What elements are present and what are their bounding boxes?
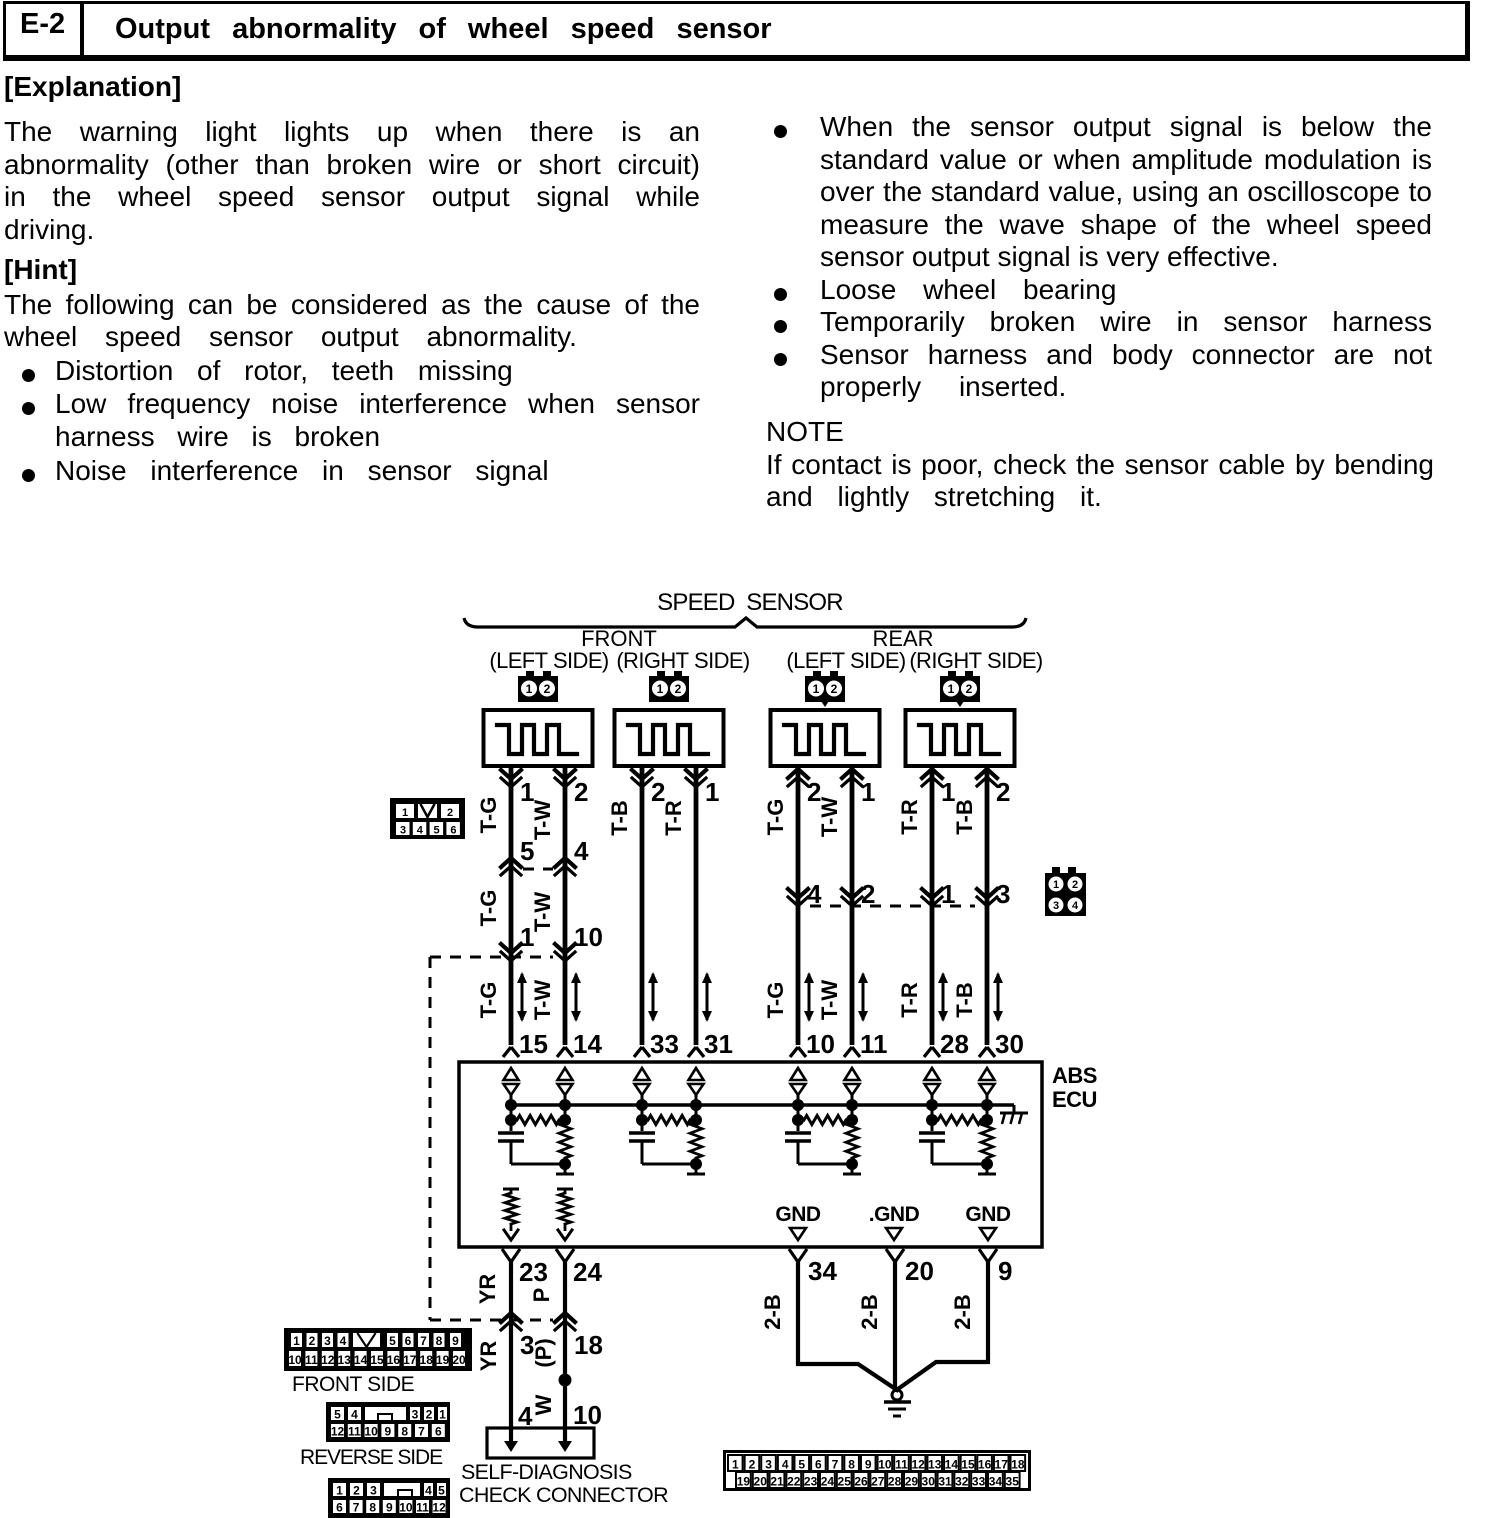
svg-text:11: 11	[895, 1458, 908, 1472]
svg-text:.GND: .GND	[869, 1203, 920, 1226]
svg-text:5: 5	[798, 1458, 805, 1472]
svg-text:23: 23	[519, 1257, 548, 1287]
svg-text:6: 6	[336, 1501, 343, 1515]
svg-text:SELF-DIAGNOSIS: SELF-DIAGNOSIS	[461, 1460, 632, 1484]
svg-text:10: 10	[878, 1458, 892, 1472]
svg-text:1: 1	[526, 682, 533, 696]
svg-text:1: 1	[402, 807, 408, 819]
svg-text:15: 15	[519, 1029, 548, 1059]
svg-text:10: 10	[399, 1501, 413, 1515]
svg-text:20: 20	[905, 1256, 934, 1286]
svg-text:24: 24	[821, 1475, 835, 1489]
svg-text:1: 1	[1053, 879, 1059, 891]
svg-text:13: 13	[338, 1353, 352, 1367]
svg-text:6: 6	[450, 825, 456, 837]
svg-text:1: 1	[520, 922, 534, 952]
svg-text:33: 33	[972, 1475, 986, 1489]
svg-text:3: 3	[324, 1334, 331, 1348]
svg-text:13: 13	[928, 1458, 942, 1472]
svg-text:2: 2	[426, 1408, 433, 1422]
svg-text:T-G: T-G	[763, 982, 788, 1019]
svg-text:4: 4	[340, 1334, 347, 1348]
svg-text:4: 4	[1072, 900, 1079, 912]
svg-text:T-G: T-G	[476, 797, 501, 834]
svg-text:3: 3	[370, 1484, 377, 1498]
svg-text:10: 10	[806, 1029, 835, 1059]
svg-text:34: 34	[808, 1256, 837, 1286]
svg-text:2: 2	[749, 1458, 756, 1472]
svg-text:30: 30	[922, 1475, 936, 1489]
svg-text:2: 2	[675, 682, 682, 696]
svg-text:4: 4	[574, 836, 589, 866]
svg-text:24: 24	[573, 1257, 602, 1287]
svg-text:6: 6	[815, 1458, 822, 1472]
svg-text:6: 6	[435, 1425, 442, 1439]
svg-text:28: 28	[940, 1029, 969, 1059]
svg-text:ECU: ECU	[1052, 1087, 1097, 1112]
svg-text:29: 29	[905, 1475, 919, 1489]
svg-text:8: 8	[401, 1425, 408, 1439]
svg-text:18: 18	[574, 1330, 603, 1360]
svg-text:2: 2	[447, 807, 453, 819]
svg-text:9: 9	[452, 1334, 459, 1348]
svg-text:10: 10	[573, 1400, 602, 1430]
svg-text:19: 19	[436, 1353, 450, 1367]
svg-text:9: 9	[998, 1256, 1012, 1286]
svg-text:18: 18	[1011, 1458, 1025, 1472]
svg-text:SPEED SENSOR: SPEED SENSOR	[657, 589, 843, 616]
svg-text:3: 3	[400, 825, 406, 837]
svg-text:1: 1	[657, 682, 664, 696]
svg-text:GND: GND	[965, 1203, 1011, 1226]
svg-text:2: 2	[966, 682, 973, 696]
svg-text:23: 23	[804, 1475, 818, 1489]
svg-text:5: 5	[334, 1408, 341, 1422]
svg-text:9: 9	[386, 1501, 393, 1515]
svg-text:35: 35	[1006, 1475, 1020, 1489]
svg-text:4: 4	[425, 1484, 432, 1498]
svg-text:5: 5	[520, 836, 534, 866]
svg-text:2: 2	[309, 1334, 316, 1348]
svg-text:T-R: T-R	[897, 799, 922, 835]
svg-text:3: 3	[412, 1408, 419, 1422]
svg-text:14: 14	[354, 1353, 368, 1367]
svg-text:15: 15	[370, 1353, 384, 1367]
svg-text:2: 2	[544, 682, 551, 696]
svg-text:5: 5	[438, 1484, 445, 1498]
svg-text:W: W	[531, 1394, 556, 1415]
svg-text:FRONT SIDE: FRONT SIDE	[292, 1373, 415, 1396]
svg-text:2: 2	[996, 777, 1010, 807]
svg-text:REVERSE SIDE: REVERSE SIDE	[300, 1446, 443, 1469]
svg-text:17: 17	[995, 1458, 1009, 1472]
svg-text:CHECK CONNECTOR: CHECK CONNECTOR	[459, 1483, 668, 1507]
svg-text:T-R: T-R	[897, 982, 922, 1018]
svg-text:8: 8	[436, 1334, 443, 1348]
svg-text:T-W: T-W	[530, 800, 555, 841]
svg-text:(LEFT SIDE): (LEFT SIDE)	[489, 648, 608, 673]
svg-text:18: 18	[420, 1353, 434, 1367]
svg-text:9: 9	[385, 1425, 392, 1439]
svg-text:14: 14	[573, 1029, 602, 1059]
svg-text:3: 3	[1053, 900, 1059, 912]
svg-text:(P): (P)	[531, 1338, 556, 1367]
svg-text:31: 31	[938, 1475, 952, 1489]
svg-text:1: 1	[948, 682, 955, 696]
svg-text:22: 22	[787, 1475, 801, 1489]
svg-text:(RIGHT SIDE): (RIGHT SIDE)	[909, 648, 1042, 673]
svg-text:15: 15	[961, 1458, 975, 1472]
svg-text:T-G: T-G	[763, 799, 788, 836]
svg-text:YR: YR	[476, 1341, 501, 1372]
svg-text:12: 12	[911, 1458, 925, 1472]
svg-text:1: 1	[293, 1334, 300, 1348]
svg-text:27: 27	[871, 1475, 885, 1489]
svg-text:28: 28	[888, 1475, 902, 1489]
svg-text:T-G: T-G	[476, 890, 501, 927]
svg-text:2-B: 2-B	[857, 1294, 882, 1329]
svg-text:12: 12	[331, 1425, 345, 1439]
svg-text:20: 20	[754, 1475, 768, 1489]
svg-text:2: 2	[1072, 879, 1078, 891]
svg-text:7: 7	[353, 1501, 360, 1515]
svg-text:(RIGHT SIDE): (RIGHT SIDE)	[616, 648, 749, 673]
svg-text:16: 16	[387, 1353, 401, 1367]
svg-text:1: 1	[439, 1408, 446, 1422]
svg-text:7: 7	[832, 1458, 839, 1472]
svg-text:16: 16	[978, 1458, 992, 1472]
svg-text:12: 12	[321, 1353, 335, 1367]
svg-text:11: 11	[416, 1501, 429, 1515]
svg-text:2: 2	[353, 1484, 360, 1498]
svg-text:20: 20	[452, 1353, 466, 1367]
svg-text:T-G: T-G	[476, 982, 501, 1019]
svg-text:1: 1	[705, 777, 719, 807]
svg-text:P: P	[529, 1288, 554, 1303]
svg-text:T-B: T-B	[952, 799, 977, 834]
svg-text:1: 1	[813, 682, 820, 696]
svg-text:17: 17	[403, 1353, 417, 1367]
svg-text:31: 31	[704, 1029, 733, 1059]
svg-text:T-W: T-W	[817, 980, 842, 1021]
svg-text:11: 11	[305, 1353, 318, 1367]
svg-text:11: 11	[860, 1029, 888, 1059]
svg-text:YR: YR	[475, 1274, 500, 1305]
svg-text:4: 4	[417, 825, 424, 837]
svg-text:11: 11	[348, 1425, 361, 1439]
svg-text:33: 33	[650, 1029, 679, 1059]
svg-text:8: 8	[848, 1458, 855, 1472]
svg-text:5: 5	[434, 825, 440, 837]
svg-text:7: 7	[418, 1425, 425, 1439]
svg-text:(LEFT SIDE): (LEFT SIDE)	[786, 648, 905, 673]
svg-text:26: 26	[854, 1475, 868, 1489]
svg-text:2: 2	[831, 682, 838, 696]
svg-text:2: 2	[574, 777, 588, 807]
svg-text:25: 25	[838, 1475, 852, 1489]
svg-text:T-B: T-B	[607, 800, 632, 835]
svg-text:T-R: T-R	[661, 800, 686, 836]
svg-text:ABS: ABS	[1052, 1063, 1097, 1088]
svg-text:1: 1	[336, 1484, 343, 1498]
svg-text:30: 30	[995, 1029, 1024, 1059]
svg-text:1: 1	[861, 777, 875, 807]
svg-text:GND: GND	[775, 1203, 821, 1226]
svg-text:T-W: T-W	[530, 980, 555, 1021]
svg-text:19: 19	[737, 1475, 751, 1489]
svg-text:2-B: 2-B	[760, 1294, 785, 1329]
svg-text:10: 10	[574, 922, 603, 952]
svg-text:34: 34	[989, 1475, 1003, 1489]
svg-text:1: 1	[732, 1458, 739, 1472]
svg-text:14: 14	[945, 1458, 959, 1472]
svg-text:12: 12	[432, 1501, 446, 1515]
svg-text:3: 3	[765, 1458, 772, 1472]
svg-text:T-B: T-B	[952, 982, 977, 1017]
svg-text:4: 4	[782, 1458, 789, 1472]
svg-text:21: 21	[770, 1475, 784, 1489]
svg-text:4: 4	[351, 1408, 358, 1422]
svg-text:9: 9	[865, 1458, 872, 1472]
svg-text:32: 32	[955, 1475, 969, 1489]
svg-text:T-W: T-W	[817, 797, 842, 838]
svg-text:10: 10	[364, 1425, 378, 1439]
svg-text:10: 10	[288, 1353, 302, 1367]
svg-text:6: 6	[405, 1334, 412, 1348]
svg-text:2-B: 2-B	[950, 1294, 975, 1329]
svg-text:8: 8	[369, 1501, 376, 1515]
svg-text:3: 3	[996, 879, 1010, 909]
svg-text:7: 7	[420, 1334, 427, 1348]
svg-text:5: 5	[389, 1334, 396, 1348]
